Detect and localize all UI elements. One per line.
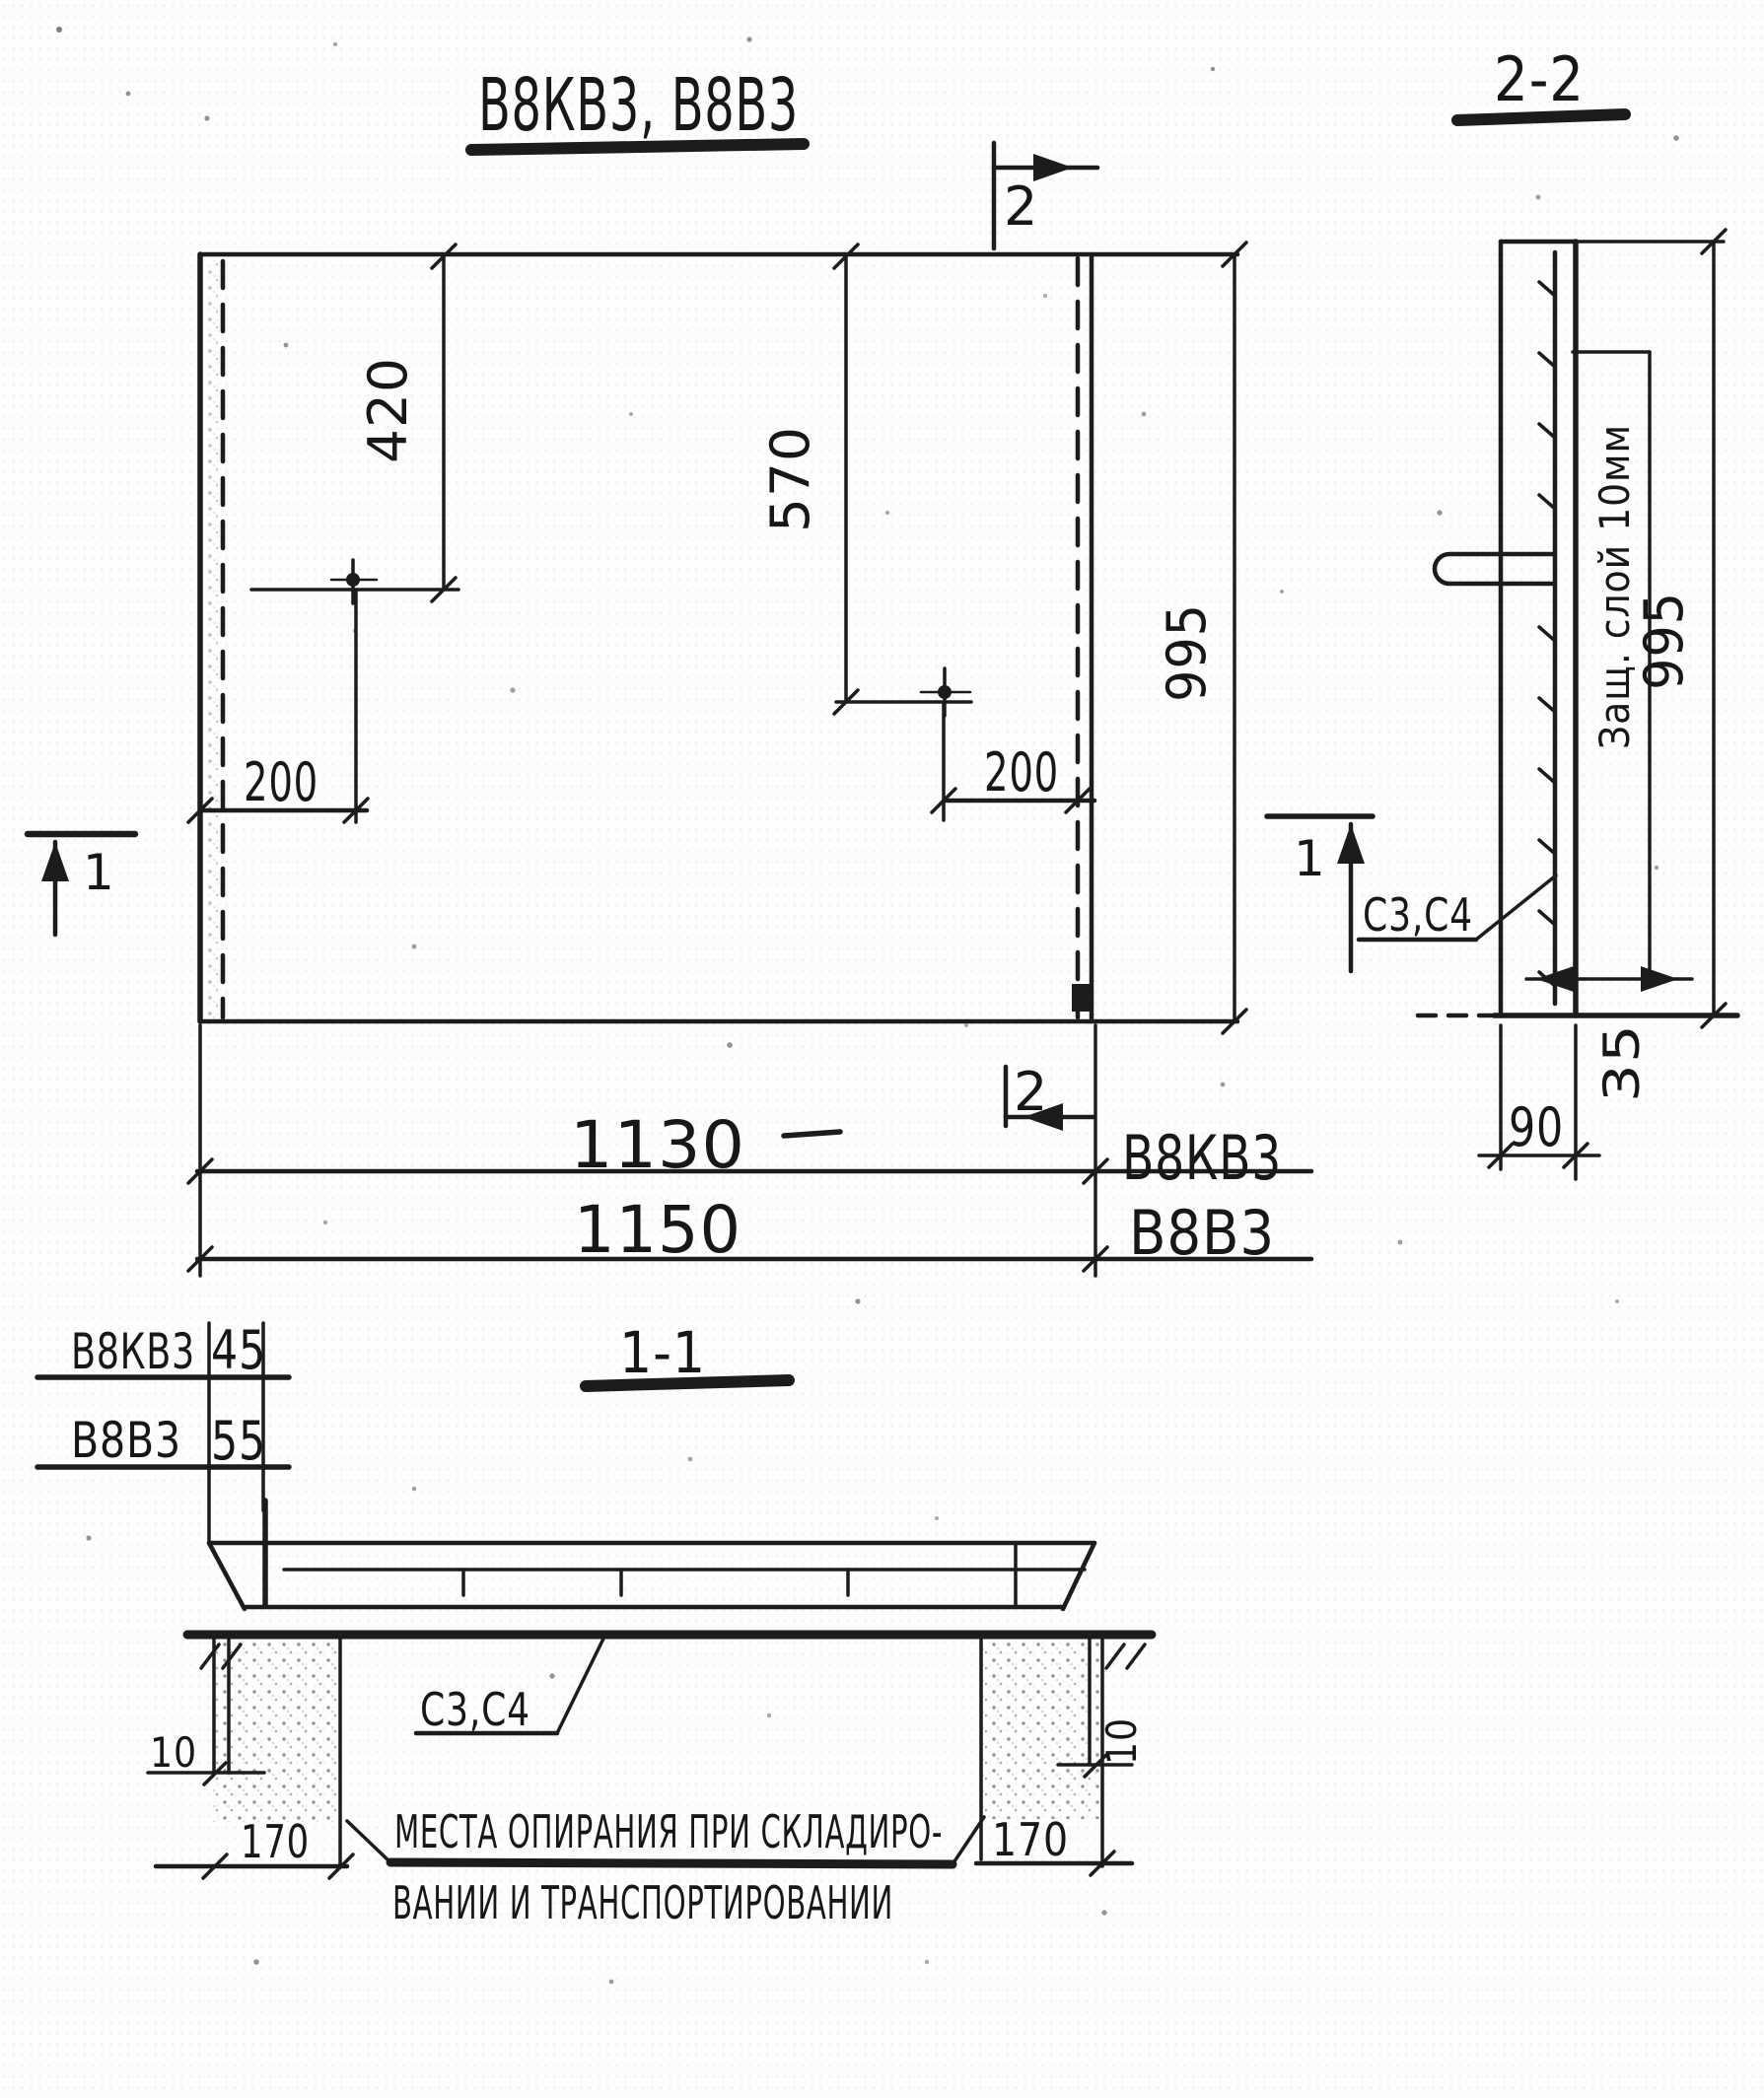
- thickness-table: В8КВ3 45 В8В3 55: [37, 1319, 289, 1544]
- section-marker-1-right: 1: [1267, 816, 1373, 971]
- dim-170-left-text: 170: [241, 1815, 310, 1868]
- dim-35-text: 35: [1593, 1023, 1651, 1102]
- dim-995-section-text: 995: [1633, 592, 1695, 690]
- label-1130-type: В8КВ3: [1122, 1122, 1282, 1194]
- marker-1-right-text: 1: [1294, 830, 1326, 887]
- section-1-1-rebar-callout: С3,С4: [416, 1637, 604, 1736]
- dim-10-left-text: 10: [150, 1728, 197, 1777]
- plan-dim-995: 995: [1156, 243, 1246, 1033]
- dim-10-right-text: 10: [1097, 1717, 1146, 1765]
- support-pad-right: 10 170: [976, 1635, 1146, 1875]
- plan-dim-570: 570: [759, 245, 971, 716]
- dim-200-left-text: 200: [244, 751, 318, 813]
- scanned-drawing-sheet: В8КВ3, В8В3 420 570 20: [0, 0, 1764, 2098]
- dim-90-text: 90: [1509, 1096, 1564, 1158]
- plan-dim-200-right: 200: [932, 704, 1094, 820]
- section-2-2-dim-35: 35: [1526, 966, 1692, 1102]
- plan-dim-420: 420: [251, 245, 459, 603]
- marker-2-bottom-text: 2: [1014, 1061, 1048, 1123]
- dim-995-plan-text: 995: [1156, 603, 1218, 702]
- thickness-row1-type: В8КВ3: [71, 1323, 195, 1380]
- drawing-canvas: В8КВ3, В8В3 420 570 20: [0, 0, 1764, 2098]
- rebar-label-1-1: С3,С4: [420, 1683, 530, 1736]
- section-2-2-title: 2-2: [1494, 43, 1585, 115]
- dim-1150-text: 1150: [574, 1192, 741, 1268]
- section-2-2-dim-995: 995: [1633, 230, 1726, 1027]
- rebar-label-2-2: С3,С4: [1363, 888, 1473, 942]
- section-2-2-label: 2-2: [1457, 43, 1625, 120]
- section-marker-1-left: 1: [28, 834, 135, 935]
- marker-2-top-text: 2: [1004, 175, 1038, 238]
- section-2-2-rebar-callout: С3,С4: [1359, 875, 1556, 942]
- drawing-title: В8КВ3, В8В3: [478, 63, 799, 148]
- dim-1130-text: 1130: [570, 1107, 745, 1183]
- drawing-title-block: В8КВ3, В8В3: [471, 63, 804, 150]
- thickness-row2-type: В8В3: [71, 1412, 181, 1469]
- storage-note-line1: МЕСТА ОПИРАНИЯ ПРИ СКЛАДИРО-: [394, 1805, 943, 1858]
- dim-200-right-text: 200: [984, 741, 1059, 804]
- dim-570-text: 570: [759, 426, 821, 532]
- section-2-2-dim-90: 90: [1479, 1025, 1599, 1179]
- thickness-row2-value: 55: [211, 1410, 266, 1472]
- storage-note: МЕСТА ОПИРАНИЯ ПРИ СКЛАДИРО- ВАНИИ И ТРА…: [347, 1805, 984, 1929]
- dim-170-right-text: 170: [992, 1813, 1069, 1866]
- protective-layer-note: Защ. слой 10мм: [1590, 424, 1639, 749]
- section-1-1-label: 1-1: [586, 1319, 789, 1386]
- plan-width-dimensions: 1130 В8КВ3 1150 В8В3: [188, 1025, 1311, 1276]
- dim-420-text: 420: [357, 357, 419, 463]
- label-1150-type: В8В3: [1129, 1197, 1275, 1269]
- section-marker-2-bottom: 2: [1006, 1061, 1094, 1131]
- marker-1-left-text: 1: [83, 844, 115, 901]
- section-1-1-title: 1-1: [619, 1319, 706, 1386]
- storage-note-line2: ВАНИИ И ТРАНСПОРТИРОВАНИИ: [392, 1876, 893, 1929]
- section-marker-2-top: 2: [994, 143, 1097, 248]
- support-pad-left: 10 170: [148, 1635, 353, 1878]
- thickness-row1-value: 45: [211, 1319, 266, 1381]
